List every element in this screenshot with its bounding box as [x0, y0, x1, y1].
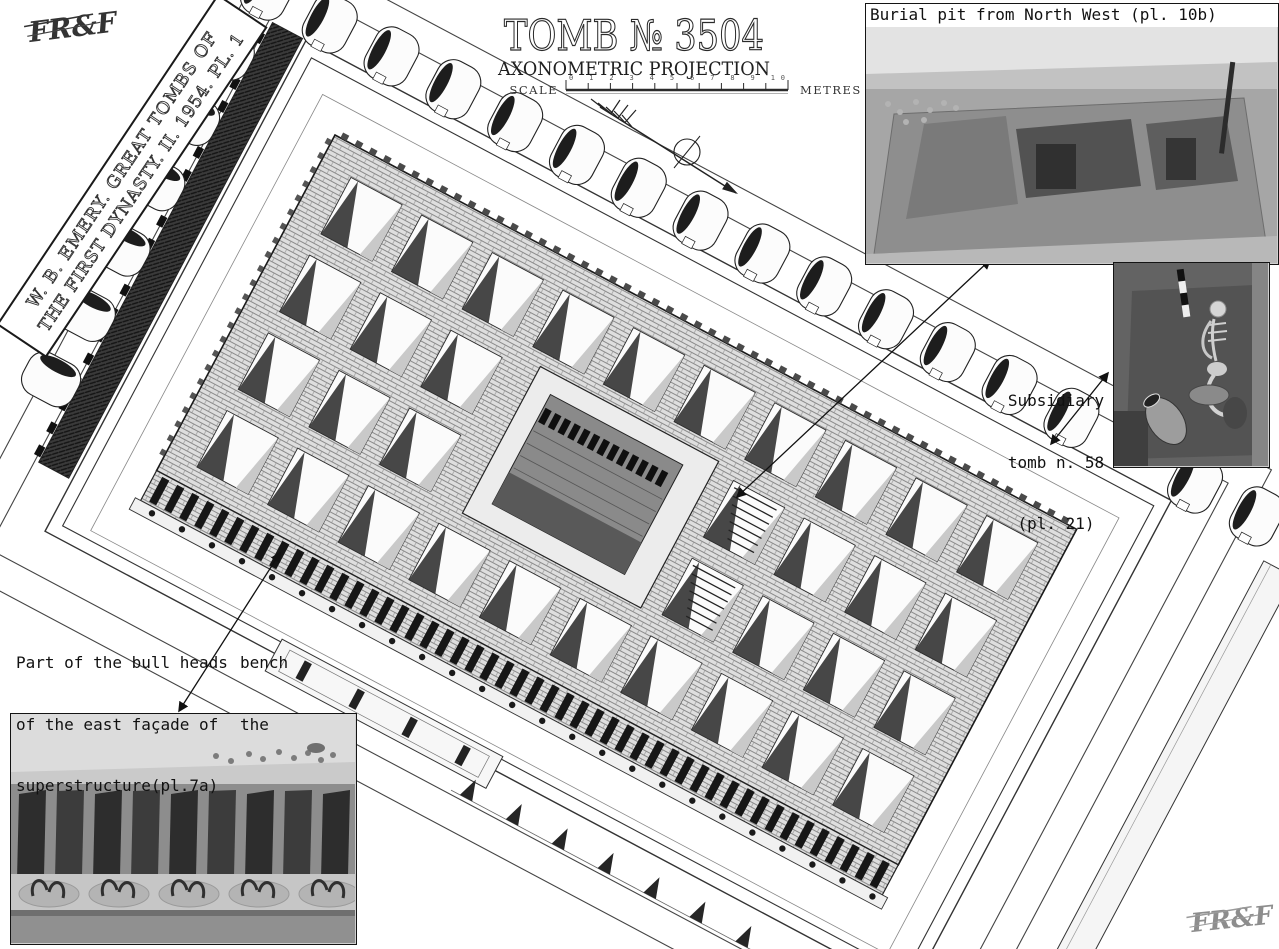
- scale-label: SCALE: [509, 83, 558, 97]
- subsidiary-tomb-vault: [296, 0, 363, 60]
- label-line: tomb n. 58: [999, 453, 1113, 474]
- small-tomb-cone: [552, 825, 574, 850]
- photo-subsidiary-tomb: [1113, 262, 1270, 468]
- title-text: TOMB № 3504: [504, 11, 764, 60]
- subsidiary-tomb-vault: [605, 152, 672, 224]
- subsidiary-tomb-vault: [481, 87, 548, 159]
- subsidiary-tomb-vault: [728, 218, 795, 290]
- plate-page: TOMB № 3504 AXONOMETRIC PROJECTION SCALE…: [0, 0, 1279, 949]
- outer-terrace-bar: [1038, 561, 1279, 949]
- label-line: superstructure(pl.7a): [16, 776, 228, 797]
- bull-heads-label-right: bench the: [240, 612, 288, 776]
- label-line: Subsidiary: [999, 391, 1113, 412]
- burial-pit-photo-art: [866, 4, 1277, 263]
- bull-heads-label-left: Part of the bull heads of the east façad…: [16, 612, 228, 838]
- label-line: of the east façade of: [16, 715, 228, 736]
- subsidiary-tomb-vault: [790, 251, 857, 323]
- subsidiary-tomb-vault: [852, 284, 919, 356]
- small-tomb-cone: [689, 898, 711, 923]
- label-line: bench: [240, 653, 288, 674]
- label-line: the: [240, 715, 288, 736]
- page-title: TOMB № 3504 AXONOMETRIC PROJECTION: [497, 11, 770, 80]
- metres-label: METRES: [800, 83, 862, 97]
- small-tomb-cone: [735, 923, 757, 948]
- subsidiary-tomb-vault: [543, 119, 610, 191]
- subsidiary-tomb-vault: [419, 54, 486, 126]
- burial-pit-caption: Burial pit from North West (pl. 10b): [866, 4, 1278, 27]
- fraf-logo-top: FR&F: [23, 5, 121, 49]
- fraf-logo-bottom: FR&F: [1186, 900, 1276, 939]
- subsidiary-tomb-label: Subsidiary tomb n. 58 (pl. 21): [999, 350, 1113, 576]
- subsidiary-tomb-vault: [914, 317, 981, 389]
- subsidiary-tomb-vault: [358, 21, 425, 93]
- subsidiary-tomb-vault: [1223, 481, 1279, 553]
- subsidiary-tomb-photo-art: [1114, 263, 1268, 466]
- subsidiary-tomb-vault: [667, 185, 734, 257]
- small-tomb-cone: [643, 874, 665, 899]
- small-tomb-cone: [598, 850, 620, 875]
- small-tomb-cone: [506, 801, 528, 826]
- photo-burial-pit: Burial pit from North West (pl. 10b): [865, 3, 1279, 265]
- label-line: (pl. 21): [999, 514, 1113, 535]
- label-line: Part of the bull heads: [16, 653, 228, 674]
